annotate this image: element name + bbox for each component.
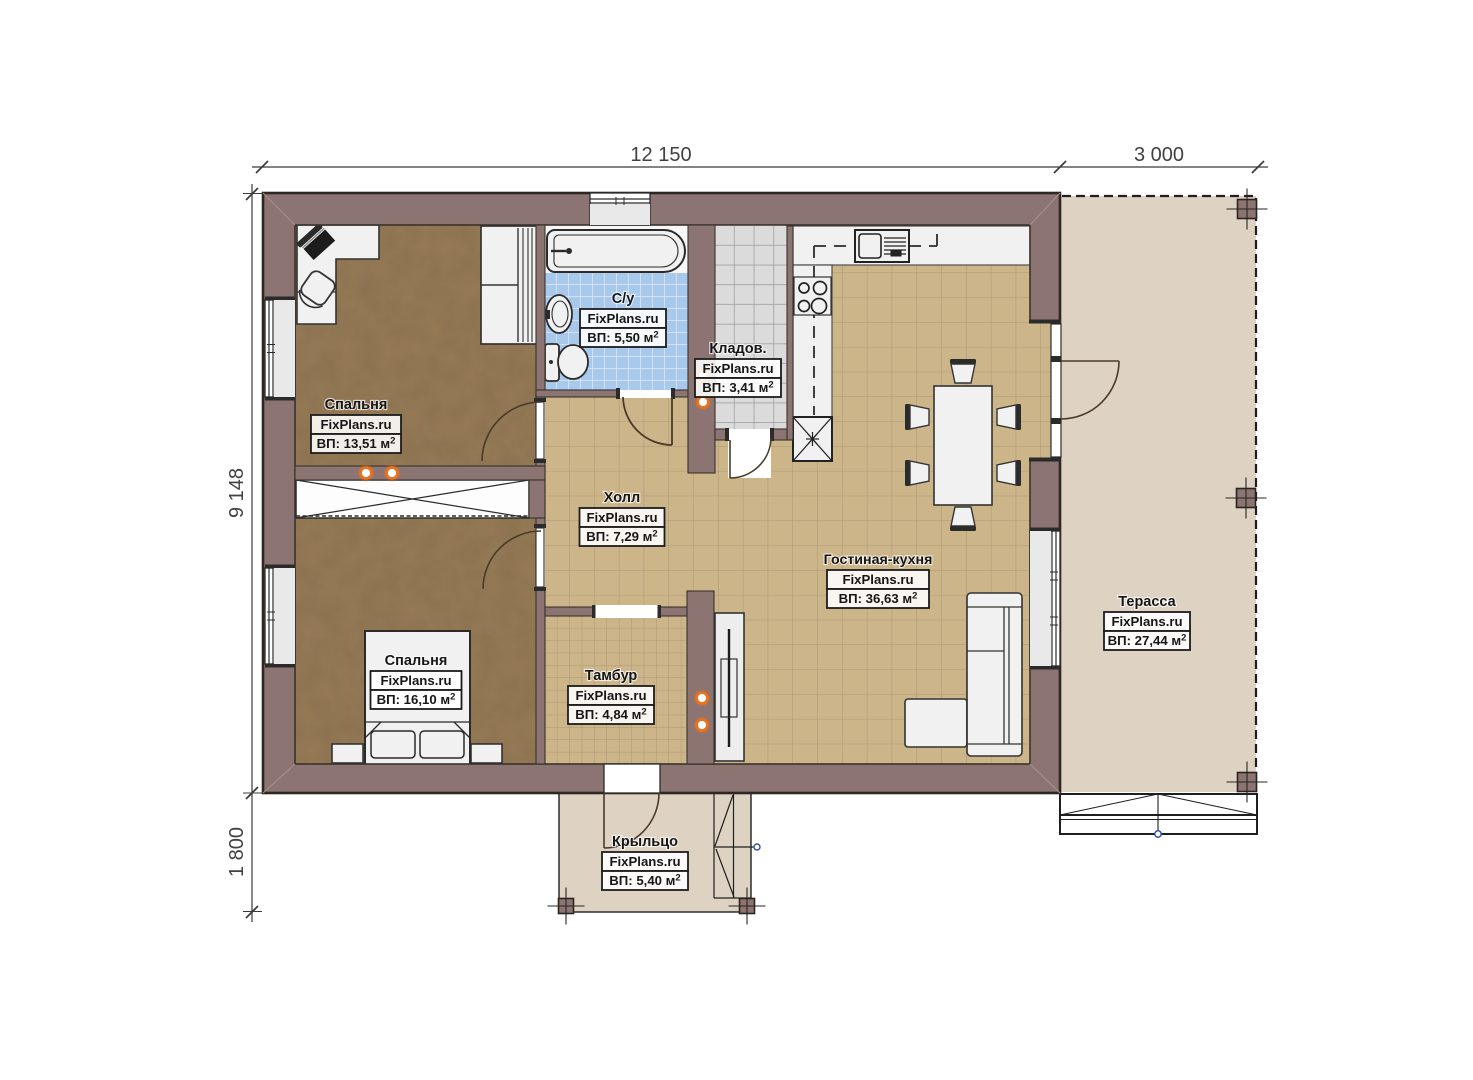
svg-text:Кладов.: Кладов. <box>709 341 766 357</box>
svg-text:FixPlans.ru: FixPlans.ru <box>842 572 913 587</box>
svg-text:FixPlans.ru: FixPlans.ru <box>702 361 773 376</box>
svg-text:FixPlans.ru: FixPlans.ru <box>1111 614 1182 629</box>
svg-text:ВП: 5,40 м2: ВП: 5,40 м2 <box>609 873 680 889</box>
svg-text:Терасса: Терасса <box>1118 594 1176 610</box>
svg-text:FixPlans.ru: FixPlans.ru <box>575 688 646 703</box>
svg-text:ВП: 7,29 м2: ВП: 7,29 м2 <box>586 529 657 545</box>
svg-text:FixPlans.ru: FixPlans.ru <box>380 673 451 688</box>
svg-text:3 000: 3 000 <box>1134 144 1184 166</box>
svg-text:Крыльцо: Крыльцо <box>612 834 678 850</box>
svg-text:С/у: С/у <box>612 291 635 307</box>
svg-text:ВП: 36,63 м2: ВП: 36,63 м2 <box>839 591 918 607</box>
svg-text:ВП: 4,84 м2: ВП: 4,84 м2 <box>575 707 646 723</box>
svg-text:9 148: 9 148 <box>226 468 248 518</box>
svg-text:FixPlans.ru: FixPlans.ru <box>320 417 391 432</box>
svg-text:Тамбур: Тамбур <box>585 668 638 684</box>
svg-text:FixPlans.ru: FixPlans.ru <box>586 510 657 525</box>
svg-text:1 800: 1 800 <box>226 827 248 877</box>
svg-text:FixPlans.ru: FixPlans.ru <box>587 311 658 326</box>
svg-text:Холл: Холл <box>604 490 640 506</box>
svg-text:ВП: 27,44 м2: ВП: 27,44 м2 <box>1108 633 1187 649</box>
svg-text:FixPlans.ru: FixPlans.ru <box>609 854 680 869</box>
svg-text:Гостиная-кухня: Гостиная-кухня <box>824 552 933 568</box>
svg-text:ВП: 5,50 м2: ВП: 5,50 м2 <box>587 330 658 346</box>
svg-text:ВП: 16,10 м2: ВП: 16,10 м2 <box>377 692 456 708</box>
svg-text:Спальня: Спальня <box>385 653 448 669</box>
svg-text:ВП: 3,41 м2: ВП: 3,41 м2 <box>702 380 773 396</box>
svg-text:12 150: 12 150 <box>630 144 691 166</box>
svg-text:Спальня: Спальня <box>325 397 388 413</box>
svg-text:ВП: 13,51 м2: ВП: 13,51 м2 <box>317 436 396 452</box>
